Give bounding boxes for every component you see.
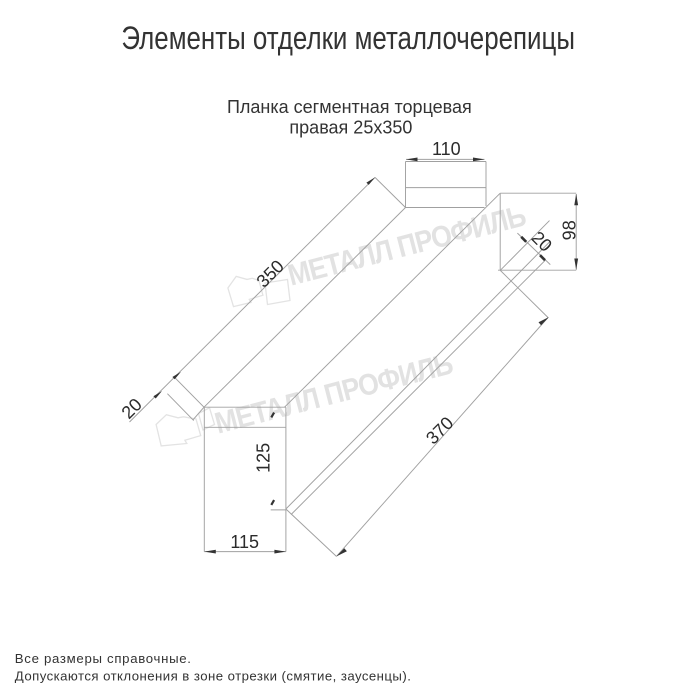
svg-text:правая 25х350: правая 25х350: [289, 118, 412, 138]
svg-text:Элементы отделки металлочерепи: Элементы отделки металлочерепицы: [121, 21, 575, 56]
svg-text:125: 125: [253, 443, 273, 473]
svg-text:115: 115: [230, 532, 259, 552]
svg-text:Планка сегментная торцевая: Планка сегментная торцевая: [227, 97, 472, 117]
svg-text:110: 110: [432, 139, 461, 159]
svg-text:Допускаются отклонения в зоне: Допускаются отклонения в зоне отрезки (с…: [15, 668, 412, 683]
svg-text:Все размеры справочные.: Все размеры справочные.: [15, 651, 192, 666]
svg-text:98: 98: [560, 220, 580, 240]
